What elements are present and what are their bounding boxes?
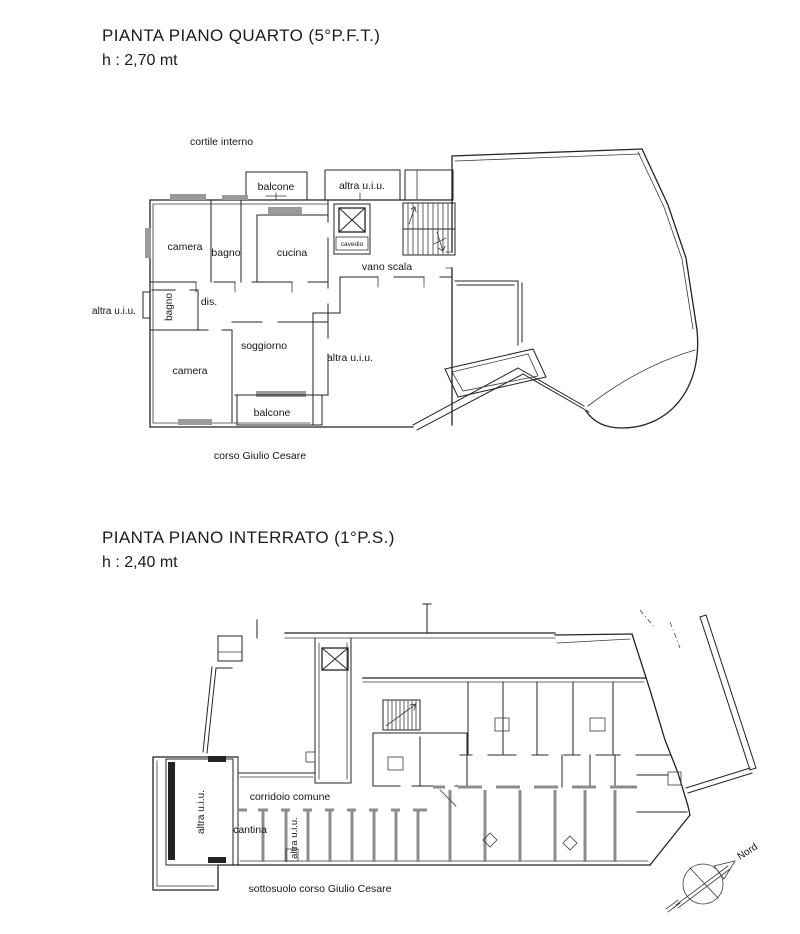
room-label-cantina: cantina xyxy=(233,824,267,836)
room-label-bagno-small: bagno xyxy=(164,293,175,321)
room-label-camera-bottom: camera xyxy=(172,365,207,377)
floor-plan-quarto-drawing: cortile interno balcone altra u.i.u. cam… xyxy=(0,0,800,480)
interrato-outer-walls xyxy=(203,604,690,865)
room-label-dis: dis. xyxy=(201,296,217,308)
north-arrow-icon xyxy=(666,861,735,912)
basement-stairs-icon xyxy=(238,700,467,786)
label-nord: Nord xyxy=(736,841,760,862)
label-vano-scala: vano scala xyxy=(362,261,412,273)
room-label-balcone-top: balcone xyxy=(258,181,295,193)
quarto-room-labels: cortile interno balcone altra u.i.u. cam… xyxy=(92,136,412,462)
room-label-camera-top: camera xyxy=(167,241,202,253)
label-altra-uiu-small: altra u.i.u. xyxy=(289,817,300,859)
label-altra-uiu-mid: altra u.i.u. xyxy=(327,352,373,364)
room-label-balcone-bottom: balcone xyxy=(254,407,291,419)
floor-plan-page: { "colors": { "ink": "#232323", "wall_gr… xyxy=(0,0,800,934)
label-altra-uiu-big: altra u.i.u. xyxy=(196,790,207,834)
label-corso-giulio-cesare: corso Giulio Cesare xyxy=(214,450,306,462)
room-label-bagno-top: bagno xyxy=(211,247,240,259)
stairs-icon xyxy=(403,203,455,255)
interrato-middle-walls xyxy=(363,678,687,812)
room-label-soggiorno: soggiorno xyxy=(241,340,287,352)
interrato-outside-ramp-wall xyxy=(670,615,756,793)
floor-plan-interrato-drawing: altra u.i.u. corridoio comune cantina al… xyxy=(0,480,800,934)
label-sottosuolo-corso-giulio-cesare: sottosuolo corso Giulio Cesare xyxy=(249,883,392,895)
label-altra-uiu-left: altra u.i.u. xyxy=(92,306,136,317)
room-label-cucina: cucina xyxy=(277,247,308,259)
label-cavedio: cavedio xyxy=(341,241,364,248)
label-cortile-interno: cortile interno xyxy=(190,136,253,148)
label-corridoio-comune: corridoio comune xyxy=(250,791,331,803)
label-altra-uiu-top: altra u.i.u. xyxy=(339,180,385,192)
basement-elevator-icon xyxy=(306,638,351,783)
interrato-room-labels: altra u.i.u. corridoio comune cantina al… xyxy=(196,790,760,895)
